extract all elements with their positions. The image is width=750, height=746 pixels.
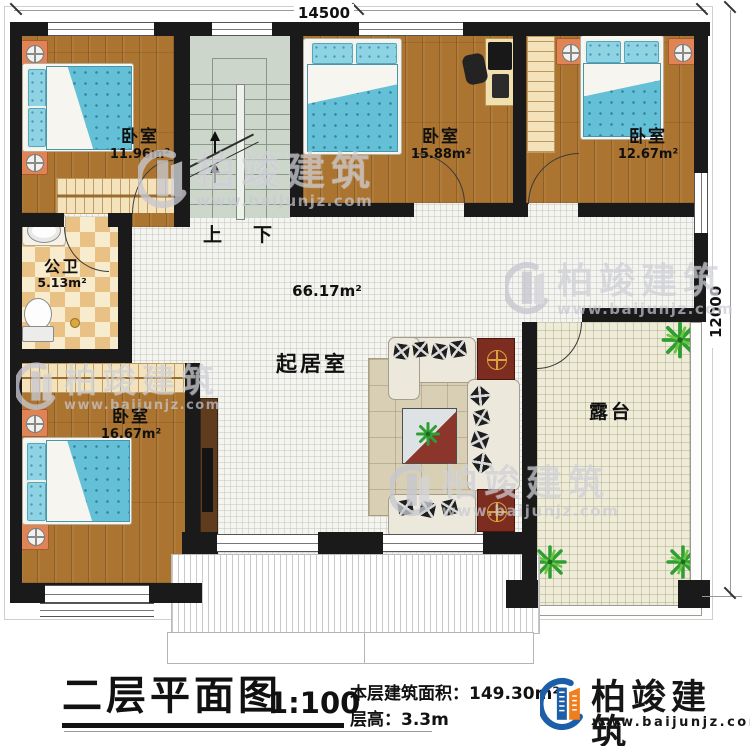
wall-terrace-top [582,308,694,322]
room-name: 起居室 [260,352,364,376]
room-label-bedroom-n: 卧室 15.88m² [400,128,482,162]
drawing-scale: 1:100 [268,689,360,718]
stairs-up-label: 上 [203,220,222,247]
nightstand [556,38,583,65]
window [359,22,463,36]
wall-bathroom-bottom [10,349,132,363]
room-label-bathroom: 公卫 5.13m² [26,258,98,291]
lamp-icon [26,154,44,172]
pillow [25,480,48,523]
lamp-icon [562,44,580,62]
desk-accessory [492,74,509,98]
window [45,585,149,603]
dimension-right-value: 12000 [706,276,726,348]
sofa-cushion [419,501,437,519]
floor-drain-icon [70,318,80,328]
dimension-line-right [730,10,731,597]
floor-plan-page: 卧室 11.96m² 卧室 15.88m² 卧室 12.67m² 公卫 5.13… [0,0,750,746]
room-label-living-area: 66.17m² [287,283,367,300]
title-underline-thick [62,723,344,728]
pillow [622,39,661,65]
eave-hatch [171,554,540,634]
window [217,534,318,552]
plant-icon [413,419,443,449]
wall-stair-right [290,36,303,217]
bed-sheet [47,67,93,149]
floor-area-label: 本层建筑面积： [350,684,469,704]
mattress [307,64,398,152]
floor-height-value: 3.3m [401,710,449,730]
stairs-down-label: 下 [253,220,272,247]
stair-arrow-stem [214,140,216,153]
room-area: 15.88m² [400,148,482,163]
nightstand [20,522,49,550]
window-sill [40,603,154,617]
nightstand [20,148,48,175]
wall-hall-n [578,203,694,217]
window [48,22,154,36]
room-name: 卧室 [400,128,482,148]
company-logo-url: www.baijunjz.com [592,716,750,729]
pillow [354,41,399,66]
wardrobe [20,363,187,393]
terrace-pillar [506,580,538,608]
sofa-cushion [431,343,448,360]
room-area: 12.67m² [607,148,689,163]
terrace-pillar [678,580,710,608]
bed-sheet [584,64,660,96]
room-area: 66.17m² [287,283,367,300]
bed-sheet [47,441,92,521]
sofa-cushion [397,499,414,516]
wall-hall-nw [10,213,64,227]
company-logo-icon [540,677,586,735]
room-name: 卧室 [607,128,689,148]
lamp-icon [26,415,44,433]
stair-landing-line [212,58,267,59]
wall-living-bottom [182,532,218,554]
dimension-top-value: 14500 [294,4,354,22]
window [694,173,708,233]
pillow [310,41,355,66]
room-label-bedroom-ne: 卧室 12.67m² [607,128,689,162]
window [383,534,483,552]
sofa-cushion [412,341,429,358]
wall-living-terrace [522,322,537,584]
window [212,22,272,36]
room-area: 16.67m² [92,428,170,443]
wall-hall-n [303,203,414,217]
room-area: 11.96m² [100,148,180,163]
company-logo-name: 柏竣建筑 [591,681,750,746]
nightstand [20,409,48,437]
wall-hall-n [464,203,528,217]
pillow [584,39,623,65]
wall-bedroom-sw-right [185,363,200,534]
room-label-terrace: 露台 [581,402,641,424]
room-name: 露台 [581,402,641,424]
side-table [477,338,515,380]
room-label-living: 起居室 [260,352,364,376]
rosette-icon [487,502,507,522]
wall-bathroom-right [118,227,132,363]
rosette-icon [487,350,507,370]
title-underline-thin [64,731,432,732]
tv [202,448,213,512]
lamp-icon [26,45,44,63]
mattress [583,63,661,137]
mattress [46,440,130,522]
pillow [25,441,48,483]
room-label-bedroom-sw: 卧室 16.67m² [92,408,170,442]
wall-bedroom-n-ne [513,36,526,203]
stair-landing-line [266,58,267,218]
floor-height-label: 层高： [350,710,401,730]
sofa-cushion [393,343,410,360]
nightstand [20,40,48,65]
room-label-bedroom-nw: 卧室 11.96m² [100,128,180,162]
bed-sheet [308,65,397,104]
pillow [26,67,48,109]
toilet-tank [22,326,54,342]
room-name: 卧室 [92,408,170,428]
terrace-parapet-right [690,322,702,616]
door-opening [132,213,174,227]
wall-living-bottom [318,532,383,554]
closet [527,36,555,153]
wall-left [10,22,22,603]
sofa-cushion [449,340,467,358]
stair-arrow-stem [214,172,216,183]
pillow [26,106,48,149]
drawing-title: 二层平面图 [62,676,282,716]
desk-monitor [488,42,512,70]
room-area: 5.13m² [26,276,98,290]
side-table [477,489,515,532]
eave-outline [167,632,534,664]
floor-height-row: 层高：3.3m [350,712,449,729]
eave-divider [364,633,365,663]
lamp-icon [674,44,692,62]
room-name: 卧室 [100,128,180,148]
floor-area-row: 本层建筑面积：149.30m² [350,686,560,703]
nightstand [668,38,696,65]
lamp-icon [27,528,45,546]
wall-hall-nw [108,213,132,227]
room-name: 公卫 [26,258,98,276]
